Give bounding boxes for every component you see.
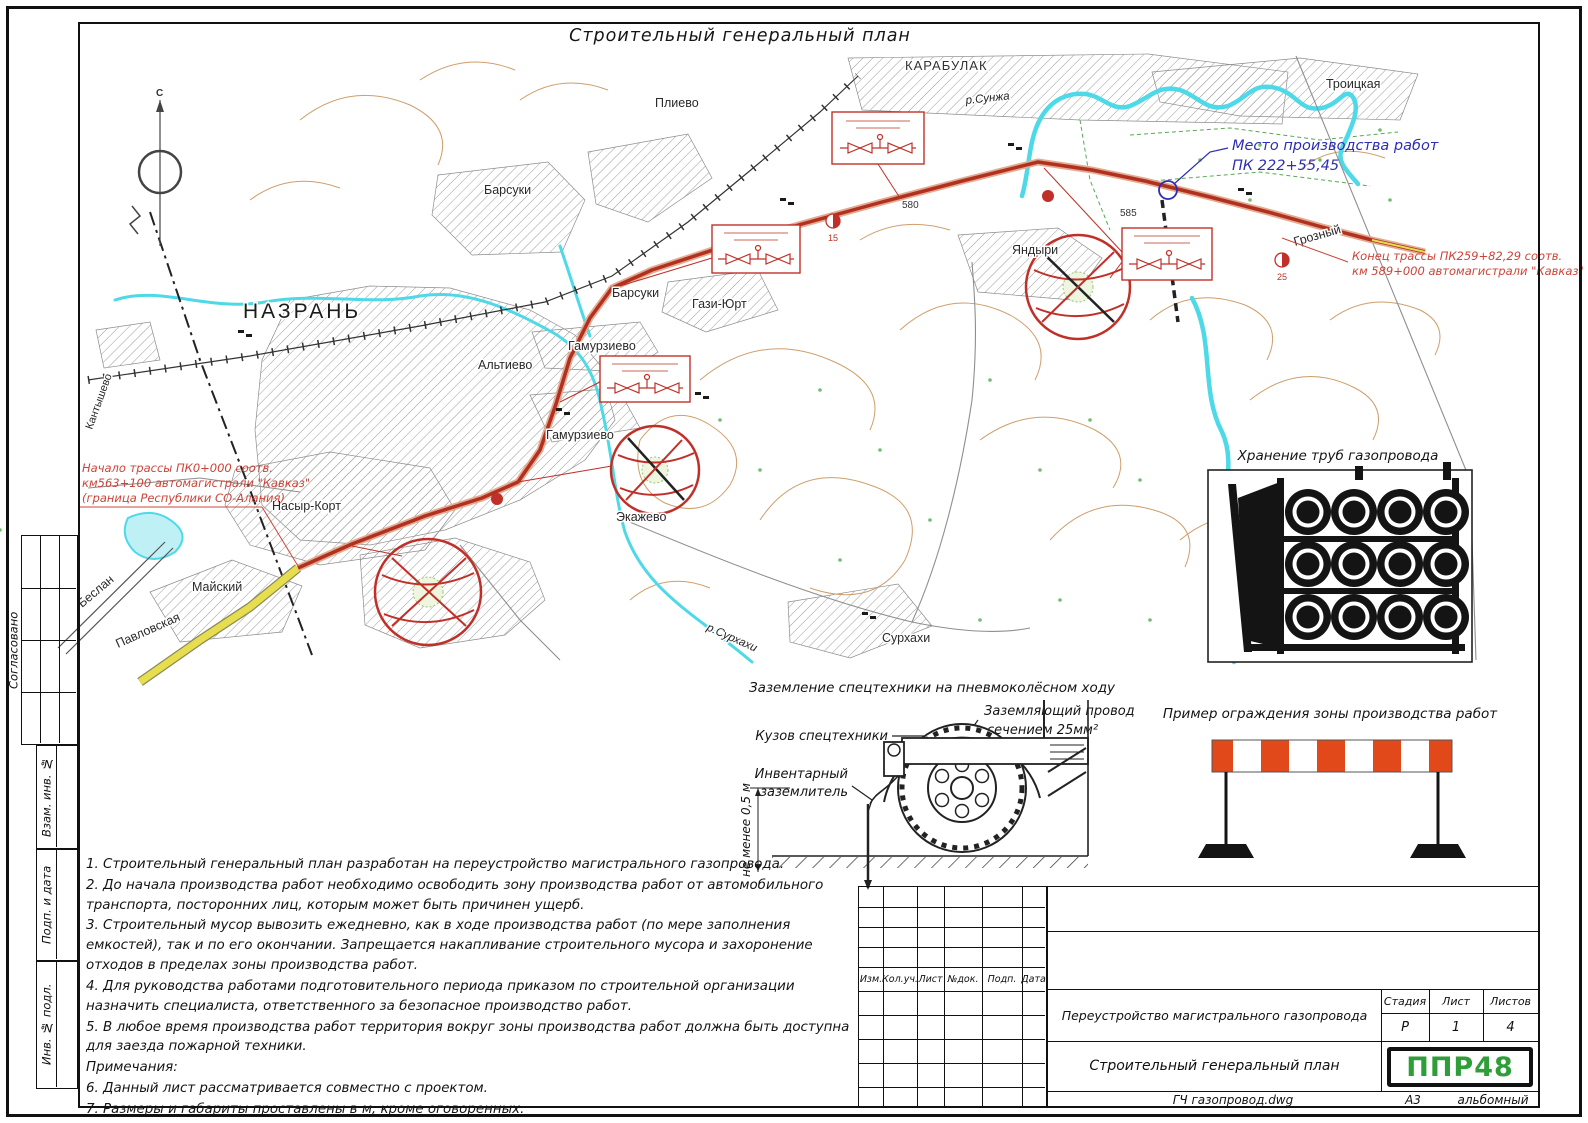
stage-value: Р (1381, 1013, 1429, 1041)
drawing-title: Строительный генеральный план (1048, 1041, 1381, 1091)
notes-block: 1. Строительный генеральный план разрабо… (86, 855, 858, 1123)
sheet-value: 1 (1429, 1013, 1483, 1041)
sheets-label: Листов (1483, 989, 1538, 1013)
stage-label: Стадия (1381, 989, 1429, 1013)
sheets-value: 4 (1483, 1013, 1538, 1041)
rev-col-koluch: Кол.уч. (883, 967, 917, 991)
titleblock-right: Переустройство магистрального газопровод… (1047, 886, 1540, 1108)
rev-col-list: Лист (917, 967, 944, 991)
rev-col-data: Дата (1022, 967, 1045, 991)
sidebar-label-podp: Подп. и дата (37, 850, 56, 959)
sidebar-block-inv: Инв. № подл. (36, 961, 78, 1089)
rev-col-izm: Изм. (859, 967, 883, 991)
drawing-sheet: 15 25 С Н (0, 0, 1588, 1123)
sidebar-block-vzam: Взам. инв. № (36, 745, 78, 849)
note-item: 1. Строительный генеральный план разрабо… (86, 855, 858, 875)
sidebar-label-inv: Инв. № подл. (37, 962, 56, 1087)
sheet-title: Строительный генеральный план (480, 26, 1000, 46)
rev-col-podp: Подп. (982, 967, 1022, 991)
note-item: 6. Данный лист рассматривается совместно… (86, 1079, 858, 1099)
sidebar-label-soglasovano: Согласовано (6, 555, 21, 745)
revision-table: Изм. Кол.уч. Лист №док. Подп. Дата (858, 886, 1047, 1108)
footer-filename: ГЧ газопровод.dwg (1108, 1091, 1358, 1109)
note-item: 7. Размеры и габариты проставлены в м, к… (86, 1100, 858, 1120)
sidebar-block-podp: Подп. и дата (36, 849, 78, 961)
sheet-label: Лист (1429, 989, 1483, 1013)
footer-format: А3 (1388, 1091, 1438, 1109)
note-item: 4. Для руководства работами подготовител… (86, 977, 858, 1017)
sidebar-grid (21, 535, 78, 745)
rev-col-dok: №док. (944, 967, 982, 991)
note-item: 5. В любое время производства работ терр… (86, 1018, 858, 1058)
note-item: 3. Строительный мусор вывозить ежедневно… (86, 916, 858, 975)
sidebar-label-vzam: Взам. инв. № (37, 746, 56, 847)
project-title: Переустройство магистрального газопровод… (1048, 989, 1381, 1041)
notes-subheader: Примечания: (86, 1058, 858, 1078)
footer-orientation: альбомный (1448, 1091, 1538, 1109)
note-item: 2. До начала производства работ необходи… (86, 876, 858, 916)
company-logo: ППР48 (1387, 1047, 1533, 1087)
